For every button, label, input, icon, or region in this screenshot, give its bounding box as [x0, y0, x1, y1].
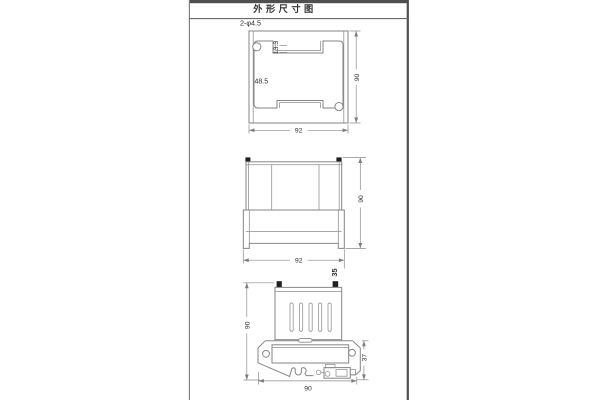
clip-spring-hole [316, 370, 321, 375]
vent-slot-5 [328, 303, 331, 331]
vent-slots [290, 303, 331, 331]
hole-count-label: 2-φ4.5 [240, 19, 261, 28]
front-base-outline [243, 210, 344, 248]
side-tab-left [277, 281, 282, 287]
din-clip-latch [316, 364, 355, 378]
dim-side-width-text: 90 [304, 385, 312, 392]
rail-rivet-left [263, 350, 270, 357]
plan-outer-outline [249, 31, 348, 123]
dim-plan-width-text: 92 [295, 128, 303, 135]
front-view: 90 92 35 [243, 157, 366, 276]
dimension-drawing: 外形尺寸图 2-φ4.5 48.5 13.3 90 [0, 0, 600, 400]
dim-front-height: 90 [343, 158, 366, 249]
dim-plan-slot-width: 48.5 [255, 79, 269, 86]
plan-bottom-notch-inner-line [280, 103, 321, 108]
dim-plan-height: 90 [350, 31, 362, 123]
dim-plan-notch-text: 13.3 [273, 41, 280, 54]
dim-side-height: 90 [244, 283, 275, 380]
vent-slot-3 [309, 303, 312, 331]
dim-plan-width: 92 [249, 125, 348, 135]
rail-base-center-notch [299, 339, 312, 343]
dim-plan-height-text: 90 [354, 74, 361, 82]
datasheet-column: 外形尺寸图 2-φ4.5 48.5 13.3 90 [0, 0, 600, 400]
dim-side-width: 90 [258, 372, 356, 392]
vent-slot-4 [319, 303, 322, 331]
side-tab-right [333, 281, 339, 287]
latch-release-tab [350, 369, 355, 374]
dim-plan-notch: 13.3 [273, 41, 287, 54]
rail-base-left-outline [258, 341, 314, 377]
vent-slot-2 [300, 303, 303, 331]
side-body-outline [275, 287, 342, 339]
latch-inner-slot [336, 370, 347, 377]
dim-front-width: 92 [243, 250, 344, 269]
dim-front-height-text: 90 [358, 195, 365, 203]
drawing-title: 外形尺寸图 [252, 3, 316, 14]
dim-side-height-text: 90 [245, 321, 252, 329]
dim-front-depth-text: 35 [330, 268, 339, 276]
rail-rivet-right [349, 349, 356, 356]
frame-top-bar [189, 0, 409, 3]
vent-slot-1 [290, 303, 293, 331]
mounting-hole-top-left [253, 43, 261, 51]
dim-front-width-text: 92 [295, 258, 303, 265]
dim-side-clip-height-text: 37 [362, 354, 369, 362]
mounting-hole-bottom-right [335, 103, 343, 111]
top-view: 2-φ4.5 48.5 13.3 90 92 [240, 19, 361, 135]
front-body-outline [246, 162, 342, 210]
plan-plate-outline [254, 41, 343, 108]
latch-pivot-hole [325, 372, 330, 377]
side-view: 90 37 90 [244, 281, 369, 392]
